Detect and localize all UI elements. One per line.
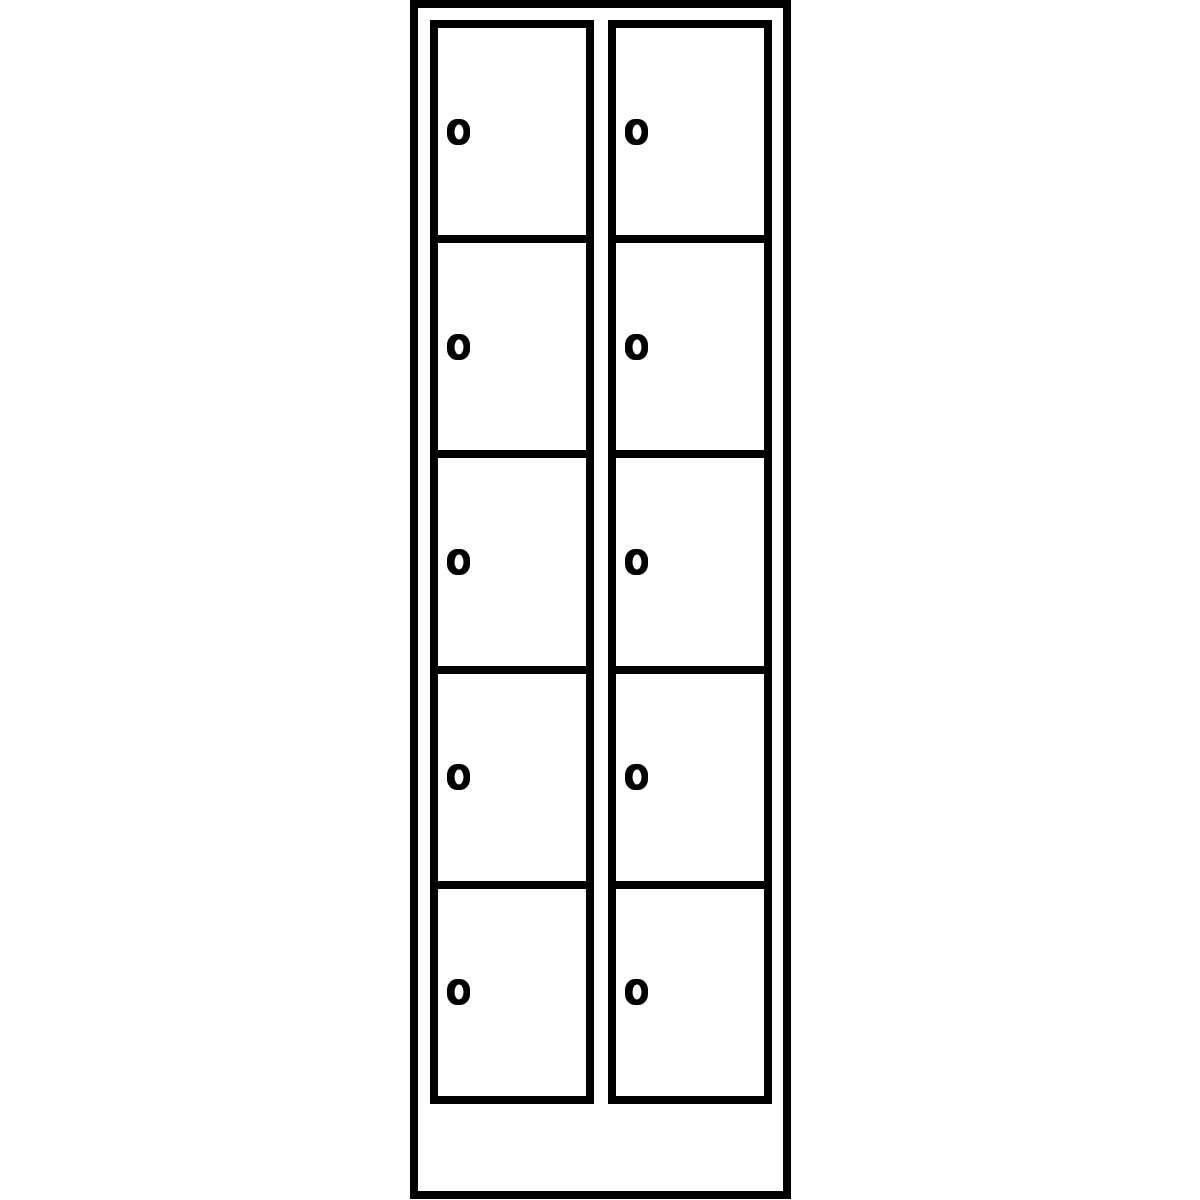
locker-door: [438, 235, 586, 450]
locker-column-left: [430, 20, 594, 1104]
locker-door: [616, 881, 764, 1096]
cylinder-lock-icon: [447, 979, 470, 1005]
lock-keyhole-slot: [632, 985, 641, 1000]
lock-keyhole-slot: [454, 770, 463, 785]
locker-door: [616, 235, 764, 450]
lock-keyhole-slot: [454, 555, 463, 570]
locker-door: [438, 450, 586, 665]
lock-keyhole-slot: [454, 985, 463, 1000]
lock-keyhole-slot: [454, 124, 463, 139]
locker-door: [616, 666, 764, 881]
cylinder-lock-icon: [447, 764, 470, 790]
lock-keyhole-slot: [632, 770, 641, 785]
locker-door: [438, 881, 586, 1096]
cylinder-lock-icon: [447, 549, 470, 575]
cylinder-lock-icon: [447, 334, 470, 360]
cylinder-lock-icon: [447, 119, 470, 145]
locker-door: [438, 666, 586, 881]
cylinder-lock-icon: [625, 764, 648, 790]
locker-door: [616, 28, 764, 235]
locker-door: [438, 28, 586, 235]
locker-product-diagram: [0, 0, 1200, 1200]
cylinder-lock-icon: [625, 549, 648, 575]
lock-keyhole-slot: [632, 555, 641, 570]
locker-door: [616, 450, 764, 665]
lock-keyhole-slot: [454, 339, 463, 354]
cylinder-lock-icon: [625, 334, 648, 360]
lock-keyhole-slot: [632, 339, 641, 354]
locker-column-right: [608, 20, 772, 1104]
cylinder-lock-icon: [625, 119, 648, 145]
lock-keyhole-slot: [632, 124, 641, 139]
cabinet-plinth: [410, 1103, 791, 1190]
cylinder-lock-icon: [625, 979, 648, 1005]
